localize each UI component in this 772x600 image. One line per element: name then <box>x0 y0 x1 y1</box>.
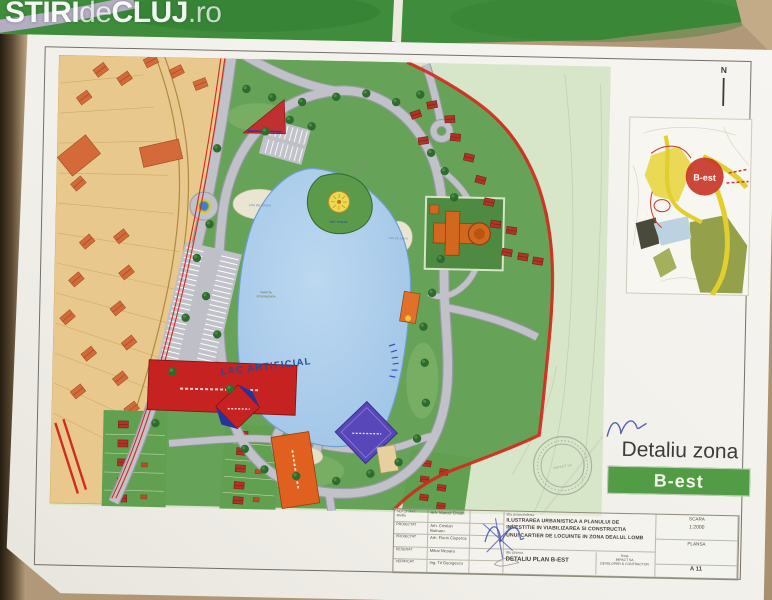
photo-of-plan: LAC ARTIFICIAL LOC DE JOACA LOC DE JOACA… <box>0 0 772 600</box>
firm-role: DEVELOPER & CONTRACTOR <box>596 562 652 567</box>
role-0: SEF proiect studiu <box>394 509 428 522</box>
north-letter: N <box>721 65 727 75</box>
church-complex <box>425 197 504 271</box>
plansa-label: PLANSA <box>656 540 739 567</box>
site-plan-map: LAC ARTIFICIAL LOC DE JOACA LOC DE JOACA… <box>48 37 621 581</box>
scale-value: 1:2000 <box>658 524 735 532</box>
zone-panel-title: Detaliu zona <box>609 438 751 465</box>
scale-label: SCARA <box>658 516 735 523</box>
scale-cell: SCARA 1:2000 <box>656 515 739 542</box>
role-1: PROIECTAT <box>394 522 428 535</box>
island-label: BAR TERASA <box>330 220 348 224</box>
zone-panel-badge: B-est <box>607 466 751 497</box>
approval-signatures <box>454 501 576 583</box>
watermark: STIRIdeCLUJ.ro <box>5 0 221 30</box>
firm-cell: firma IMPACT SA DEVELOPER & CONTRACTOR <box>595 552 652 575</box>
watermark-de: de <box>79 0 111 29</box>
sheet-number: A 11 <box>655 565 737 579</box>
inset-zone-label: B-est <box>693 172 716 182</box>
roundabout-northeast <box>433 123 449 139</box>
plan-sheet: LAC ARTIFICIAL LOC DE JOACA LOC DE JOACA… <box>0 0 772 600</box>
watermark-stiri: STIRI <box>5 0 79 29</box>
watermark-cluj: CLUJ <box>112 0 188 29</box>
playground-east-label: LOC DE JOACA <box>389 236 408 240</box>
plaza-label-2: POLIVALENTA <box>257 294 276 298</box>
playground-west-label: LOC DE JOACA <box>249 203 271 207</box>
role-4: VERIFICAT <box>393 560 427 573</box>
role-2: PROIECTAT <box>394 534 428 547</box>
watermark-ro: .ro <box>188 0 222 29</box>
inset-overview-map: B-est <box>626 117 752 296</box>
role-3: DESENAT <box>394 547 428 560</box>
building-beige <box>377 445 399 473</box>
